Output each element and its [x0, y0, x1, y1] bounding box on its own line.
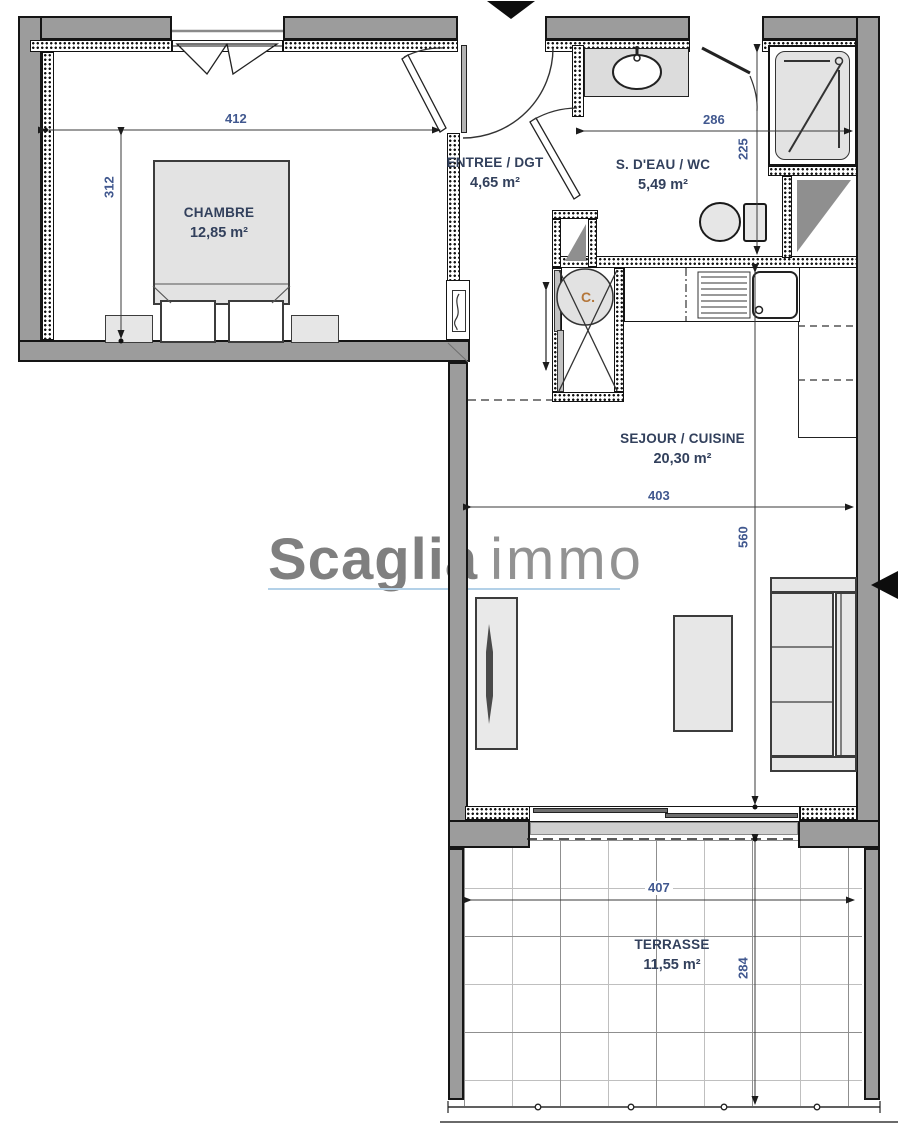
room-label-chambre: CHAMBRE 12,85 m² [149, 204, 289, 243]
room-name: SEJOUR / CUISINE [610, 430, 755, 449]
closet-sliding-leaf-2 [557, 330, 564, 392]
nightstand-right [228, 300, 284, 343]
wc-duct-wall-top [768, 166, 857, 176]
insulation-left-wall [42, 52, 54, 340]
bedroom-window-casement-icon [172, 31, 283, 74]
dim-412: 412 [222, 112, 250, 126]
room-label-sejour: SEJOUR / CUISINE 20,30 m² [610, 430, 755, 469]
exterior-wall-top-bathroom [545, 16, 690, 40]
dim-225: 225 [737, 135, 751, 163]
entry-door-swing-icon [463, 48, 553, 138]
sofa-seats [770, 592, 834, 757]
wall-corner-bottom-left [448, 820, 530, 848]
exterior-wall-top-bedroom-right [283, 16, 458, 40]
dim-560: 560 [737, 523, 751, 551]
bedroom-window-sill [172, 40, 283, 52]
closet-wall-right [614, 268, 624, 392]
sofa-backrest [835, 592, 857, 757]
sofa-armrest-top [770, 577, 857, 593]
room-label-entree: ENTREE / DGT 4,65 m² [425, 154, 565, 193]
watermark-underline [268, 588, 620, 590]
duct-triangle-bathroom [797, 180, 851, 252]
closet-wall-bottom [552, 392, 624, 402]
dim-407: 407 [645, 881, 673, 895]
room-name: S. D'EAU / WC [593, 156, 733, 175]
bedroom-door-icon [402, 48, 446, 132]
terrace-post-left [448, 848, 464, 1100]
tv-stand [475, 597, 518, 750]
closet-sliding-leaf-1 [554, 270, 561, 332]
room-name: TERRASSE [602, 936, 742, 955]
exterior-wall-living-left [448, 362, 468, 838]
room-name: CHAMBRE [149, 204, 289, 223]
room-area: 4,65 m² [425, 173, 565, 193]
exterior-wall-bedroom-bottom [18, 340, 470, 362]
shower-tray [775, 51, 850, 160]
coffee-table [673, 615, 733, 732]
kitchen-counter [624, 267, 800, 322]
terrace-post-right [864, 848, 880, 1100]
dim-284: 284 [737, 954, 751, 982]
dim-403: 403 [645, 489, 673, 503]
wall-corner-bottom-right [798, 820, 880, 848]
closet-label: C. [578, 290, 598, 305]
nightstand-left [160, 300, 216, 343]
shower-area-door-icon [702, 48, 757, 111]
window-stub-left [465, 806, 530, 820]
kitchen-counter-return [798, 322, 856, 438]
insulation-top-1 [30, 40, 172, 52]
wc-duct-wall-mid [782, 176, 792, 258]
watermark-brand-bold: Scaglia [268, 527, 478, 592]
room-label-terrasse: TERRASSE 11,55 m² [602, 936, 742, 975]
room-area: 11,55 m² [602, 955, 742, 975]
terrace-threshold [530, 822, 798, 835]
room-label-sdeau: S. D'EAU / WC 5,49 m² [593, 156, 733, 195]
sliding-door-panel-1 [533, 808, 668, 813]
room-area: 12,85 m² [149, 223, 289, 243]
window-stub-right [800, 806, 857, 820]
dim-286: 286 [700, 113, 728, 127]
watermark-brand-light: immo [490, 527, 644, 592]
exterior-wall-left [18, 16, 42, 362]
duct-wall-top [552, 210, 598, 219]
sofa-armrest-bottom [770, 756, 857, 772]
bedside-block-left [105, 315, 153, 343]
room-area: 5,49 m² [593, 175, 733, 195]
bathroom-vanity [584, 48, 689, 97]
dim-312: 312 [103, 173, 117, 201]
room-name: ENTREE / DGT [425, 154, 565, 173]
duct-wall-right [588, 219, 597, 267]
radiator [452, 290, 466, 332]
room-area: 20,30 m² [610, 449, 755, 469]
entry-door-leaf [461, 45, 467, 133]
toilet-icon [700, 203, 766, 241]
entry-marker-icon [487, 1, 535, 19]
insulation-top-2 [283, 40, 458, 52]
floor-plan: Scagliaimmo [0, 0, 900, 1144]
partition-entrance-vanity [572, 45, 584, 117]
exterior-wall-right [856, 16, 880, 840]
bedside-block-right [291, 315, 339, 343]
duct-wall-left [552, 219, 561, 267]
sliding-door-panel-2 [665, 813, 798, 818]
